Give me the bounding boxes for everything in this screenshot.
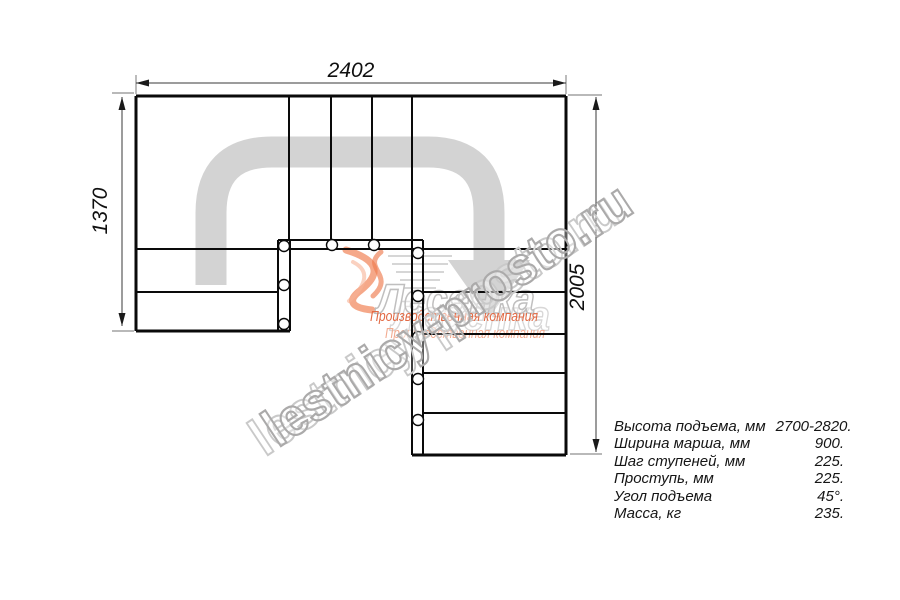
baluster-icon — [327, 240, 338, 251]
baluster-icon — [279, 280, 290, 291]
dim-arrow-down-icon — [119, 313, 126, 326]
dim-arrow-left-icon — [136, 80, 149, 87]
baluster-icon — [369, 240, 380, 251]
spec-label: Ширина марша, мм — [614, 435, 750, 452]
spec-label: Проступь, мм — [614, 470, 714, 487]
spec-row: Масса, кг 235. — [614, 505, 844, 522]
baluster-icon — [413, 415, 424, 426]
spec-label: Угол подъема — [614, 488, 712, 505]
spec-row: Высота подъема, мм 2700-2820. — [614, 418, 844, 435]
spec-list: Высота подъема, мм 2700-2820. Ширина мар… — [614, 418, 844, 522]
dimension-top-width: 2402 — [136, 59, 566, 94]
dim-value-right: 2005 — [566, 263, 589, 311]
dim-value-left: 1370 — [89, 187, 112, 234]
dim-arrow-right-icon — [553, 80, 566, 87]
baluster-icon — [413, 374, 424, 385]
dim-arrow-down-icon — [593, 439, 600, 452]
dimension-right-height: 2005 — [566, 95, 602, 454]
stair-plan-canvas: Лесенка Лесенка Производственная компани… — [0, 0, 900, 600]
spec-label: Шаг ступеней, мм — [614, 453, 745, 470]
spec-row: Проступь, мм 225. — [614, 470, 844, 487]
dim-arrow-up-icon — [119, 97, 126, 110]
spec-value: 2700-2820. — [776, 418, 852, 435]
watermark: lestnicy-prosto.ru lestnicy-prosto.ru — [239, 171, 643, 467]
dimension-left-height: 1370 — [89, 93, 134, 331]
spec-row: Угол подъема 45°. — [614, 488, 844, 505]
spec-value: 900. — [815, 435, 844, 452]
spec-value: 225. — [815, 470, 844, 487]
baluster-icon — [279, 319, 290, 330]
spec-value: 45°. — [817, 488, 844, 505]
spec-label: Масса, кг — [614, 505, 681, 522]
dim-value-top: 2402 — [327, 59, 375, 82]
spec-row: Ширина марша, мм 900. — [614, 435, 844, 452]
spec-value: 225. — [815, 453, 844, 470]
spec-label: Высота подъема, мм — [614, 418, 766, 435]
baluster-icon — [413, 248, 424, 259]
spec-value: 235. — [815, 505, 844, 522]
watermark-text: lestnicy-prosto.ru — [252, 171, 643, 458]
spec-row: Шаг ступеней, мм 225. — [614, 453, 844, 470]
dim-arrow-up-icon — [593, 97, 600, 110]
walking-line-band — [211, 152, 489, 285]
baluster-icon — [279, 241, 290, 252]
